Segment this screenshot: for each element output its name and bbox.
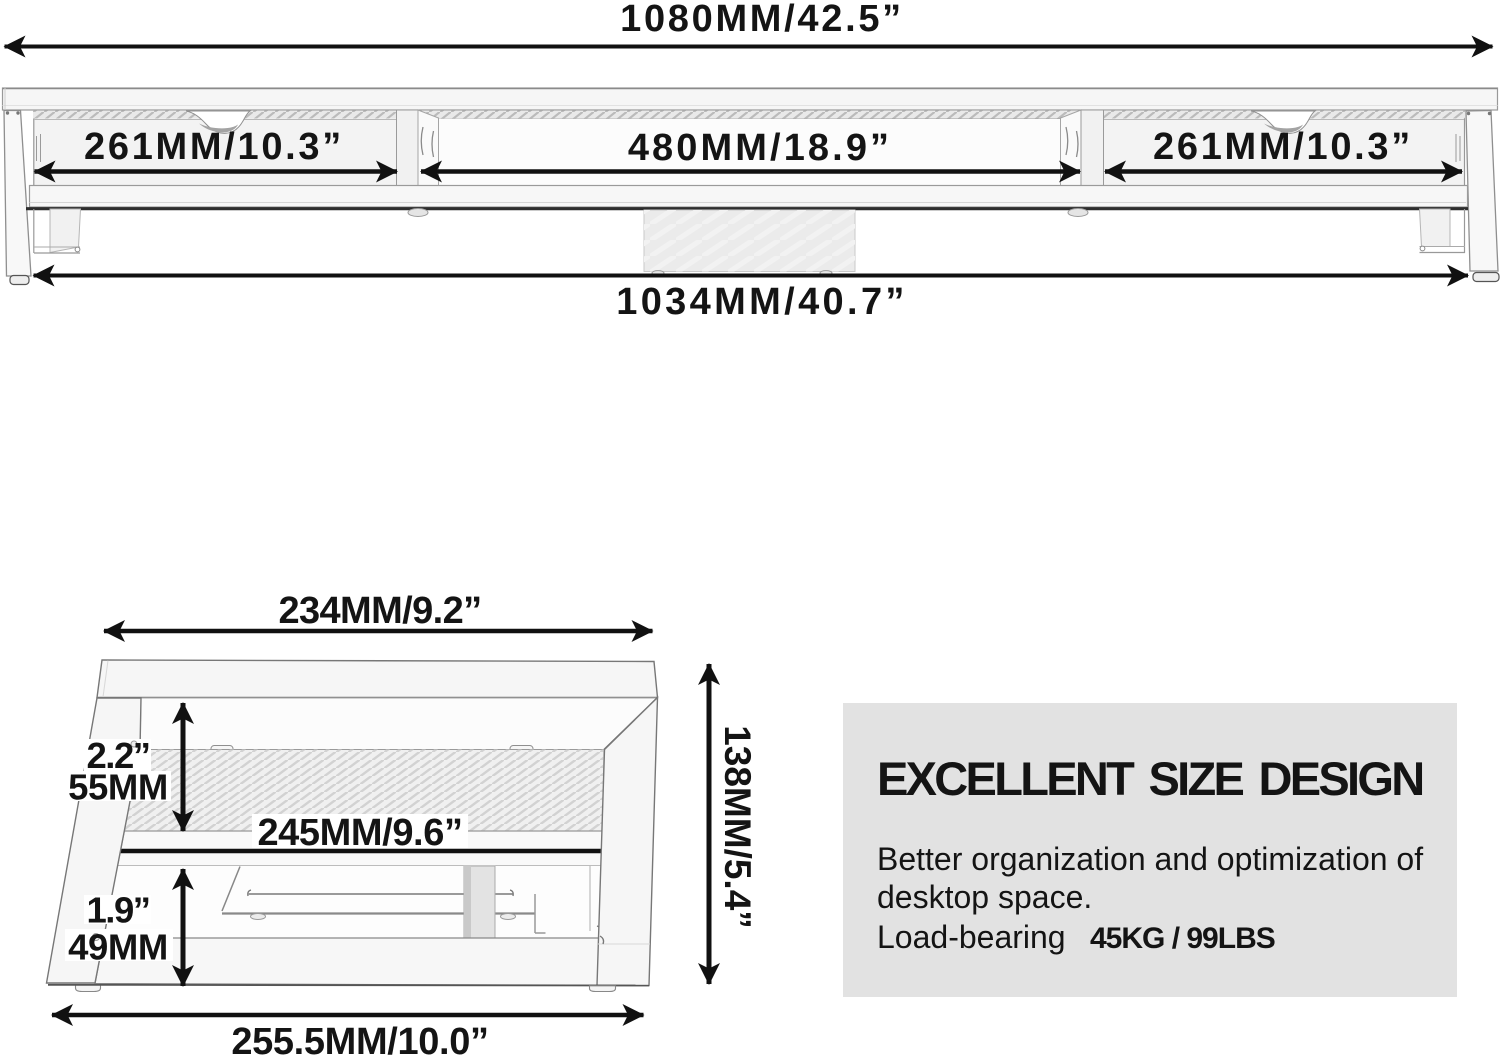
svg-text:desktop space.: desktop space. <box>877 879 1092 915</box>
svg-text:234MM/9.2”: 234MM/9.2” <box>278 590 481 632</box>
svg-text:1.9”: 1.9” <box>87 890 150 931</box>
svg-text:261MM/10.3”: 261MM/10.3” <box>1153 126 1413 168</box>
svg-text:138MM/5.4”: 138MM/5.4” <box>717 725 758 929</box>
svg-text:EXCELLENT SIZE DESIGN: EXCELLENT SIZE DESIGN <box>877 752 1423 805</box>
svg-text:55MM: 55MM <box>68 767 168 808</box>
svg-text:49MM: 49MM <box>68 927 168 968</box>
svg-text:1034MM/40.7”: 1034MM/40.7” <box>616 281 908 323</box>
svg-text:Better organization and optimi: Better organization and optimization of <box>877 841 1423 877</box>
svg-text:480MM/18.9”: 480MM/18.9” <box>628 127 892 169</box>
svg-text:255.5MM/10.0”: 255.5MM/10.0” <box>231 1021 488 1058</box>
svg-text:1080MM/42.5”: 1080MM/42.5” <box>620 0 904 40</box>
svg-text:261MM/10.3”: 261MM/10.3” <box>84 126 344 168</box>
svg-text:245MM/9.6”: 245MM/9.6” <box>257 812 462 854</box>
